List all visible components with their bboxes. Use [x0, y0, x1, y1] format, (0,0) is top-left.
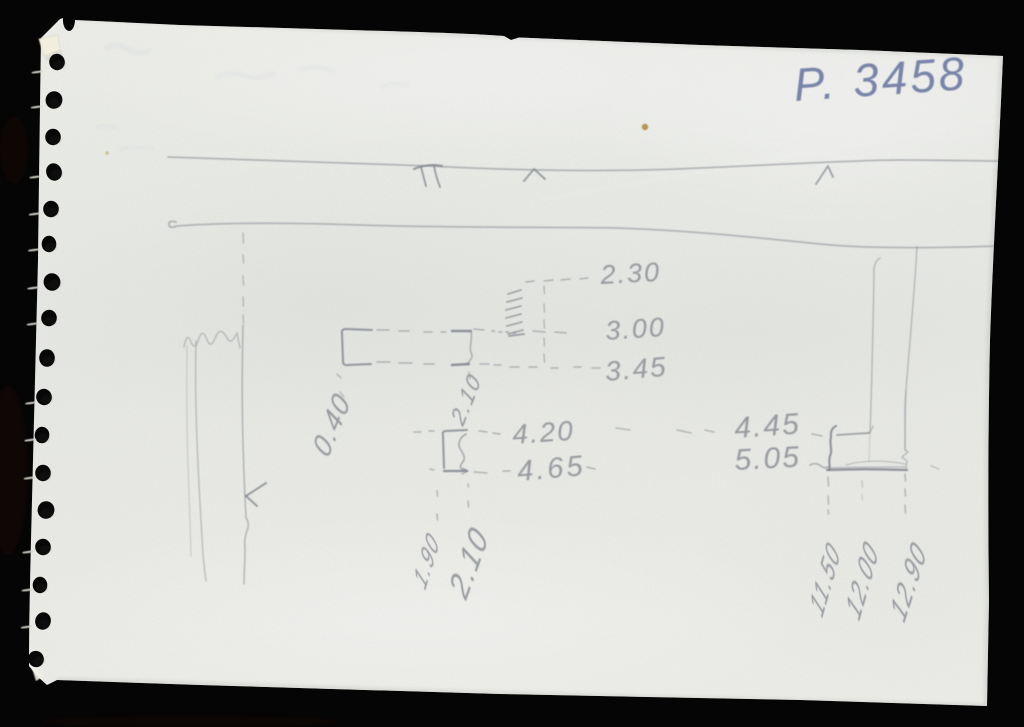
svg-text:2.30: 2.30	[599, 257, 662, 290]
svg-text:4.20: 4.20	[511, 415, 576, 450]
svg-text:4.65: 4.65	[516, 450, 587, 488]
svg-text:4.45: 4.45	[733, 407, 802, 445]
svg-text:3.00: 3.00	[604, 312, 667, 346]
svg-text:3.45: 3.45	[604, 351, 669, 387]
svg-text:5.05: 5.05	[734, 441, 802, 477]
